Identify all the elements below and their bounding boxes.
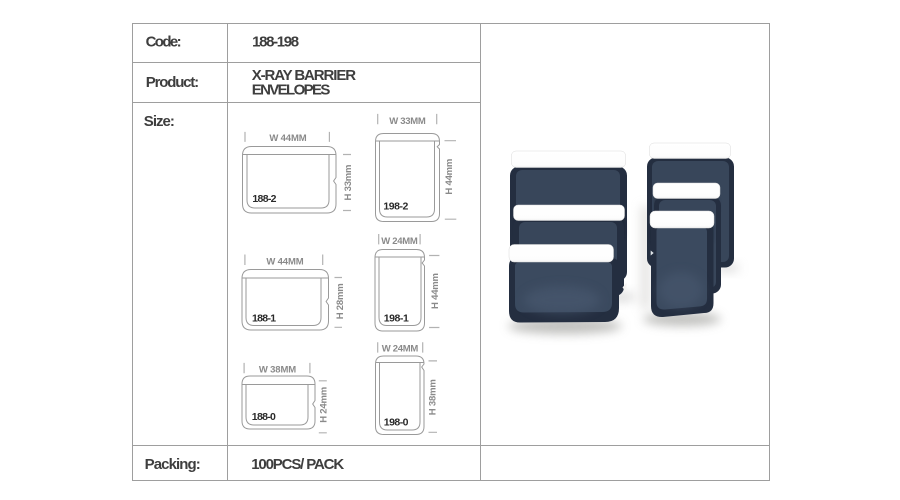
- svg-text:H 44mm: H 44mm: [444, 159, 455, 195]
- svg-text:H 44mm: H 44mm: [430, 273, 441, 309]
- svg-text:Packing:: Packing:: [145, 456, 201, 473]
- svg-text:W 24MM: W 24MM: [382, 344, 419, 355]
- svg-text:198-0: 198-0: [384, 417, 409, 429]
- svg-text:188-198: 188-198: [252, 34, 299, 51]
- svg-text:188-0: 188-0: [252, 411, 276, 423]
- svg-text:W 24MM: W 24MM: [381, 236, 418, 247]
- svg-text:Size:: Size:: [144, 113, 175, 130]
- svg-text:100PCS/ PACK: 100PCS/ PACK: [251, 456, 344, 473]
- svg-text:198-2: 198-2: [383, 201, 408, 213]
- svg-text:Code:: Code:: [146, 34, 182, 51]
- svg-text:188-2: 188-2: [252, 193, 276, 205]
- svg-text:W 44MM: W 44MM: [269, 133, 306, 144]
- svg-text:H 24mm: H 24mm: [318, 387, 329, 423]
- svg-text:H 38mm: H 38mm: [428, 379, 439, 415]
- svg-text:188-1: 188-1: [252, 313, 276, 325]
- svg-text:H 33mm: H 33mm: [343, 165, 354, 201]
- svg-text:ENVELOPES: ENVELOPES: [252, 82, 331, 99]
- svg-text:W 33MM: W 33MM: [389, 116, 426, 127]
- svg-text:H 28mm: H 28mm: [335, 283, 346, 319]
- svg-text:198-1: 198-1: [384, 312, 409, 324]
- svg-text:W 38MM: W 38MM: [259, 365, 296, 376]
- svg-text:Product:: Product:: [146, 74, 199, 91]
- svg-text:W 44MM: W 44MM: [266, 257, 303, 268]
